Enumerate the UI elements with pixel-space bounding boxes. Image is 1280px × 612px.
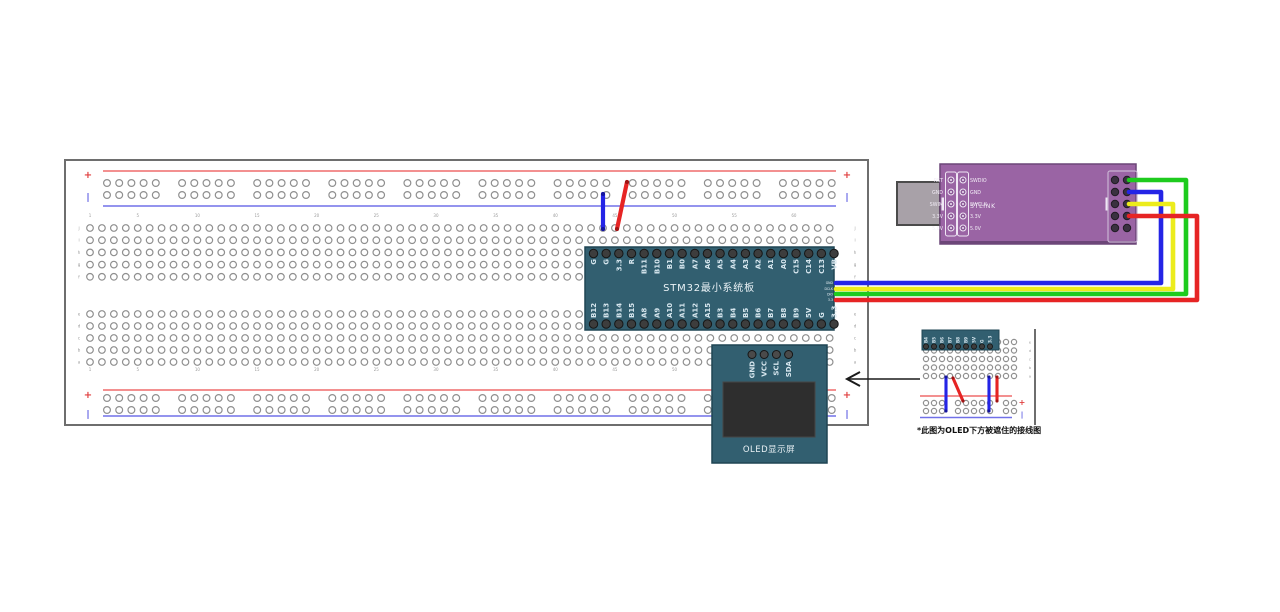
- breadboard-hole: [552, 274, 559, 281]
- breadboard-hole: [134, 347, 141, 354]
- breadboard-hole: [828, 180, 835, 187]
- breadboard-hole: [743, 335, 750, 342]
- mini-pin-label: B5: [932, 337, 937, 343]
- breadboard-hole: [182, 274, 189, 281]
- mini-wire-g-to-rail-end: [988, 376, 991, 379]
- breadboard-hole: [179, 180, 186, 187]
- breadboard-hole: [516, 311, 523, 318]
- breadboard-hole: [128, 395, 135, 402]
- breadboard-hole: [385, 261, 392, 268]
- breadboard-hole: [242, 323, 249, 330]
- breadboard-hole: [552, 225, 559, 232]
- breadboard-hole: [468, 274, 475, 281]
- breadboard-hole: [576, 335, 583, 342]
- breadboard-hole: [313, 335, 320, 342]
- breadboard-hole: [278, 192, 285, 199]
- rail-polarity-mark: +: [84, 390, 92, 401]
- breadboard-hole: [814, 237, 821, 244]
- breadboard-hole: [635, 335, 642, 342]
- breadboard-hole: [433, 335, 440, 342]
- breadboard-hole: [741, 192, 748, 199]
- breadboard-hole: [290, 335, 297, 342]
- breadboard-hole: [528, 359, 535, 366]
- breadboard-hole: [492, 237, 499, 244]
- breadboard-hole: [206, 335, 213, 342]
- breadboard-hole: [373, 311, 380, 318]
- wire-bb-33-to-rail-end: [625, 180, 629, 184]
- breadboard-hole: [491, 180, 498, 187]
- breadboard-hole: [717, 192, 724, 199]
- breadboard-hole: [492, 335, 499, 342]
- rail-polarity-mark: |: [845, 193, 848, 203]
- breadboard-hole: [767, 335, 774, 342]
- column-number: 20: [314, 367, 320, 372]
- breadboard-hole: [491, 395, 498, 402]
- breadboard-hole: [385, 249, 392, 256]
- breadboard-hole: [254, 335, 261, 342]
- breadboard-hole: [421, 237, 428, 244]
- column-number: 35: [493, 213, 499, 218]
- board-pin: [653, 249, 661, 257]
- breadboard-hole: [122, 359, 129, 366]
- breadboard-hole: [528, 407, 535, 414]
- breadboard-hole: [152, 407, 159, 414]
- stm32-pin-label: B7: [767, 308, 775, 318]
- breadboard-hole: [254, 180, 261, 187]
- breadboard-hole: [140, 407, 147, 414]
- breadboard-hole: [194, 237, 201, 244]
- breadboard-hole: [218, 225, 225, 232]
- breadboard-hole: [516, 335, 523, 342]
- breadboard-hole: [971, 356, 976, 361]
- board-pin: [665, 320, 673, 328]
- breadboard-hole: [647, 359, 654, 366]
- breadboard-hole: [955, 400, 960, 405]
- breadboard-hole: [504, 407, 511, 414]
- breadboard-hole: [979, 400, 984, 405]
- breadboard-hole: [361, 347, 368, 354]
- breadboard-hole: [111, 323, 118, 330]
- breadboard-hole: [378, 180, 385, 187]
- stm32-pin-label: A4: [729, 259, 737, 269]
- breadboard-hole: [729, 180, 736, 187]
- breadboard-hole: [816, 180, 823, 187]
- breadboard-hole: [218, 237, 225, 244]
- breadboard-hole: [230, 237, 237, 244]
- breadboard-hole: [755, 335, 762, 342]
- breadboard-hole: [230, 249, 237, 256]
- breadboard-hole: [134, 225, 141, 232]
- breadboard-hole: [341, 192, 348, 199]
- breadboard-hole: [579, 395, 586, 402]
- breadboard-hole: [206, 359, 213, 366]
- rail-polarity-mark: |: [845, 410, 848, 420]
- breadboard-hole: [303, 395, 310, 402]
- breadboard-hole: [552, 359, 559, 366]
- breadboard-hole: [290, 395, 297, 402]
- breadboard-hole: [146, 237, 153, 244]
- breadboard-hole: [591, 395, 598, 402]
- mini-wire-oled-gnd-end: [945, 410, 948, 413]
- breadboard-hole: [361, 274, 368, 281]
- breadboard-hole: [122, 225, 129, 232]
- breadboard-hole: [528, 225, 535, 232]
- stlink-pin-hole-dot: [950, 191, 952, 193]
- breadboard-hole: [468, 261, 475, 268]
- breadboard-hole: [588, 335, 595, 342]
- breadboard-hole: [278, 249, 285, 256]
- breadboard-hole: [1003, 365, 1008, 370]
- row-letter: h: [78, 250, 81, 255]
- stm32-pin-label: A15: [704, 303, 712, 318]
- breadboard-hole: [404, 180, 411, 187]
- breadboard-hole: [87, 261, 94, 268]
- breadboard-hole: [337, 261, 344, 268]
- breadboard-hole: [254, 311, 261, 318]
- breadboard-hole: [492, 261, 499, 268]
- breadboard-hole: [134, 249, 141, 256]
- breadboard-hole: [373, 225, 380, 232]
- breadboard-hole: [158, 225, 165, 232]
- breadboard-hole: [717, 180, 724, 187]
- breadboard-hole: [923, 365, 928, 370]
- breadboard-hole: [385, 359, 392, 366]
- breadboard-hole: [600, 359, 607, 366]
- breadboard-hole: [540, 237, 547, 244]
- breadboard-hole: [564, 261, 571, 268]
- breadboard-hole: [152, 180, 159, 187]
- stm32-pin-label: A11: [679, 303, 687, 318]
- breadboard-hole: [468, 359, 475, 366]
- breadboard-hole: [780, 192, 787, 199]
- breadboard-hole: [409, 274, 416, 281]
- breadboard-hole: [301, 359, 308, 366]
- breadboard-hole: [170, 359, 177, 366]
- breadboard-hole: [218, 274, 225, 281]
- breadboard-hole: [671, 347, 678, 354]
- breadboard-hole: [564, 237, 571, 244]
- breadboard-hole: [492, 311, 499, 318]
- breadboard-hole: [755, 237, 762, 244]
- breadboard-hole: [516, 192, 523, 199]
- breadboard-hole: [385, 347, 392, 354]
- breadboard-hole: [409, 323, 416, 330]
- stlink-pin-hole-dot: [962, 191, 964, 193]
- breadboard-hole: [719, 237, 726, 244]
- breadboard-hole: [266, 192, 273, 199]
- board-pin: [760, 351, 768, 359]
- breadboard-hole: [666, 407, 673, 414]
- breadboard-hole: [266, 323, 273, 330]
- breadboard-hole: [230, 311, 237, 318]
- stlink-pin-hole-dot: [950, 203, 952, 205]
- breadboard-hole: [301, 311, 308, 318]
- breadboard-hole: [516, 323, 523, 330]
- breadboard-hole: [731, 335, 738, 342]
- breadboard-hole: [254, 237, 261, 244]
- breadboard-hole: [170, 347, 177, 354]
- breadboard-hole: [254, 323, 261, 330]
- breadboard-hole: [278, 395, 285, 402]
- breadboard-hole: [254, 249, 261, 256]
- breadboard-hole: [194, 261, 201, 268]
- stlink-header-pin: [1111, 212, 1118, 219]
- stm32-pin-label: R: [628, 258, 636, 264]
- breadboard-hole: [564, 311, 571, 318]
- breadboard-hole: [987, 365, 992, 370]
- breadboard-hole: [624, 335, 631, 342]
- board-pin: [779, 320, 787, 328]
- breadboard-hole: [480, 249, 487, 256]
- stm32-pin-label: B8: [780, 308, 788, 318]
- breadboard-hole: [146, 347, 153, 354]
- breadboard-hole: [329, 192, 336, 199]
- breadboard-hole: [780, 180, 787, 187]
- breadboard-hole: [659, 225, 666, 232]
- stm32-pin-label: C14: [805, 259, 813, 274]
- stlink-pin-label: RST: [934, 178, 943, 184]
- breadboard-hole: [337, 323, 344, 330]
- breadboard-hole: [228, 192, 235, 199]
- breadboard-hole: [707, 225, 714, 232]
- breadboard-hole: [341, 395, 348, 402]
- breadboard-hole: [404, 192, 411, 199]
- breadboard-hole: [635, 347, 642, 354]
- breadboard-hole: [695, 359, 702, 366]
- breadboard-hole: [445, 225, 452, 232]
- breadboard-hole: [313, 261, 320, 268]
- stm32-pin-label: B13: [603, 303, 611, 318]
- breadboard-hole: [753, 180, 760, 187]
- breadboard-hole: [428, 395, 435, 402]
- breadboard-hole: [540, 335, 547, 342]
- breadboard-hole: [468, 225, 475, 232]
- breadboard-hole: [612, 237, 619, 244]
- breadboard-hole: [792, 180, 799, 187]
- breadboard-hole: [433, 237, 440, 244]
- stm32-swd-pin-label: DCLK: [824, 287, 833, 291]
- breadboard-hole: [301, 347, 308, 354]
- breadboard-hole: [791, 225, 798, 232]
- breadboard-hole: [378, 395, 385, 402]
- breadboard-hole: [341, 407, 348, 414]
- breadboard-hole: [230, 225, 237, 232]
- breadboard-hole: [111, 347, 118, 354]
- breadboard-hole: [528, 323, 535, 330]
- breadboard-hole: [99, 261, 106, 268]
- breadboard-hole: [397, 274, 404, 281]
- stm32-pin-label: VB: [831, 259, 839, 270]
- breadboard-hole: [278, 261, 285, 268]
- breadboard-hole: [337, 347, 344, 354]
- stm32-pin-label: A12: [691, 303, 699, 318]
- breadboard-hole: [87, 249, 94, 256]
- breadboard-hole: [366, 180, 373, 187]
- breadboard-hole: [266, 311, 273, 318]
- column-number: 45: [612, 367, 618, 372]
- breadboard-hole: [290, 180, 297, 187]
- breadboard-hole: [588, 237, 595, 244]
- breadboard-hole: [266, 359, 273, 366]
- breadboard-hole: [433, 249, 440, 256]
- stm32-pin-label: B12: [590, 303, 598, 318]
- breadboard-hole: [947, 356, 952, 361]
- stlink-pin-label: GND: [932, 190, 943, 196]
- breadboard-hole: [353, 192, 360, 199]
- breadboard-hole: [385, 335, 392, 342]
- row-letter: e: [1029, 340, 1031, 344]
- breadboard-hole: [158, 274, 165, 281]
- breadboard-hole: [254, 359, 261, 366]
- breadboard-hole: [428, 192, 435, 199]
- board-pin: [785, 351, 793, 359]
- stm32-pin-label: C15: [793, 259, 801, 274]
- board-pin: [754, 249, 762, 257]
- breadboard-hole: [600, 347, 607, 354]
- breadboard-hole: [828, 395, 835, 402]
- breadboard-hole: [170, 225, 177, 232]
- breadboard-hole: [206, 261, 213, 268]
- breadboard-hole: [361, 311, 368, 318]
- breadboard-hole: [301, 335, 308, 342]
- breadboard-hole: [397, 323, 404, 330]
- oled-pin-label: SCL: [773, 360, 781, 375]
- board-pin: [716, 320, 724, 328]
- breadboard-hole: [453, 180, 460, 187]
- breadboard-hole: [421, 261, 428, 268]
- row-letter: h: [854, 250, 857, 255]
- oled-pin-label: VCC: [761, 361, 769, 377]
- mini-wire-33-to-rail-end: [996, 400, 999, 403]
- breadboard-hole: [647, 237, 654, 244]
- breadboard-hole: [361, 335, 368, 342]
- breadboard-hole: [647, 335, 654, 342]
- breadboard-hole: [678, 407, 685, 414]
- breadboard-hole: [378, 192, 385, 199]
- board-pin: [691, 320, 699, 328]
- breadboard-hole: [445, 274, 452, 281]
- breadboard-hole: [266, 335, 273, 342]
- board-pin: [615, 320, 623, 328]
- breadboard-hole: [99, 323, 106, 330]
- breadboard-hole: [266, 237, 273, 244]
- breadboard-hole: [654, 407, 661, 414]
- stlink-header-pin: [1111, 176, 1118, 183]
- breadboard-hole: [576, 323, 583, 330]
- arrow-layer: [847, 372, 920, 386]
- mini-wire-oled-gnd-end: [945, 376, 948, 379]
- column-number: 40: [553, 367, 559, 372]
- breadboard-hole: [647, 225, 654, 232]
- breadboard-hole: [290, 323, 297, 330]
- breadboard-hole: [134, 274, 141, 281]
- breadboard-hole: [228, 180, 235, 187]
- breadboard-hole: [955, 408, 960, 413]
- breadboard-hole: [397, 261, 404, 268]
- breadboard-hole: [361, 323, 368, 330]
- breadboard-hole: [767, 225, 774, 232]
- column-number: 50: [672, 213, 678, 218]
- row-letter: d: [1029, 349, 1031, 353]
- breadboard-hole: [325, 225, 332, 232]
- breadboard-hole: [278, 407, 285, 414]
- breadboard-hole: [230, 335, 237, 342]
- board-pin: [805, 249, 813, 257]
- breadboard-hole: [301, 225, 308, 232]
- breadboard-hole: [416, 192, 423, 199]
- breadboard-hole: [576, 347, 583, 354]
- breadboard-hole: [1011, 408, 1016, 413]
- board-pin: [767, 249, 775, 257]
- breadboard-hole: [552, 261, 559, 268]
- breadboard-hole: [278, 323, 285, 330]
- board-pin: [741, 249, 749, 257]
- breadboard-hole: [719, 225, 726, 232]
- breadboard-hole: [579, 407, 586, 414]
- breadboard-hole: [337, 311, 344, 318]
- breadboard-hole: [87, 237, 94, 244]
- breadboard-hole: [624, 225, 631, 232]
- breadboard-hole: [576, 311, 583, 318]
- stlink-header-pin: [1111, 200, 1118, 207]
- rail-polarity-mark: |: [86, 193, 89, 203]
- breadboard-hole: [146, 359, 153, 366]
- breadboard-hole: [642, 192, 649, 199]
- breadboard-hole: [814, 225, 821, 232]
- board-pin: [779, 249, 787, 257]
- breadboard-hole: [146, 323, 153, 330]
- stm32-pin-label: B4: [729, 308, 737, 318]
- breadboard-hole: [421, 311, 428, 318]
- breadboard-hole: [313, 225, 320, 232]
- breadboard-hole: [931, 400, 936, 405]
- breadboard-hole: [87, 274, 94, 281]
- breadboard-hole: [603, 180, 610, 187]
- breadboard-hole: [457, 225, 464, 232]
- row-letter: a: [1029, 374, 1031, 378]
- breadboard-hole: [671, 359, 678, 366]
- breadboard-hole: [971, 408, 976, 413]
- stlink-pin-label: 5.0V: [932, 226, 944, 232]
- board-pin: [792, 320, 800, 328]
- breadboard-hole: [683, 225, 690, 232]
- breadboard-hole: [146, 311, 153, 318]
- breadboard-hole: [600, 335, 607, 342]
- breadboard-hole: [254, 407, 261, 414]
- breadboard-hole: [516, 180, 523, 187]
- column-number: 30: [433, 367, 439, 372]
- breadboard-hole: [416, 395, 423, 402]
- breadboard-hole: [1003, 373, 1008, 378]
- column-number: 15: [254, 367, 260, 372]
- stlink-pin-label: 5.0V: [970, 226, 982, 232]
- breadboard-hole: [146, 261, 153, 268]
- breadboard-hole: [491, 192, 498, 199]
- breadboard-hole: [325, 237, 332, 244]
- breadboard-hole: [191, 192, 198, 199]
- stm32-pin-label: B0: [679, 259, 687, 269]
- breadboard-hole: [397, 237, 404, 244]
- breadboard-hole: [421, 274, 428, 281]
- breadboard-hole: [206, 249, 213, 256]
- board-pin: [772, 351, 780, 359]
- board-pin: [729, 320, 737, 328]
- stm32-pin-label: B1: [666, 259, 674, 269]
- breadboard-hole: [995, 365, 1000, 370]
- breadboard-hole: [301, 261, 308, 268]
- stm32-title: STM32最小系统板: [663, 281, 755, 294]
- breadboard-hole: [504, 347, 511, 354]
